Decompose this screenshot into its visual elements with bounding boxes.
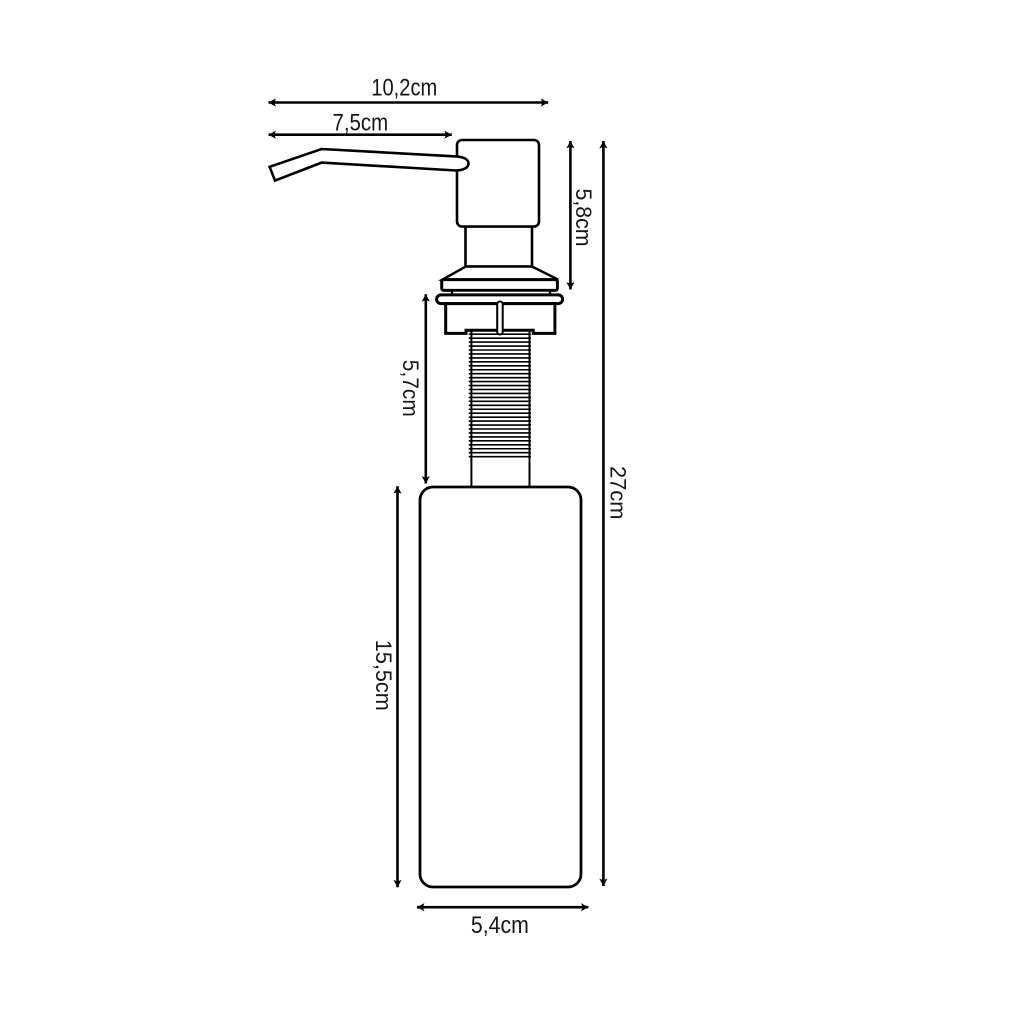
svg-text:27cm: 27cm [606,466,631,520]
svg-text:5,8cm: 5,8cm [571,189,596,247]
svg-text:5,4cm: 5,4cm [471,912,529,939]
svg-text:7,5cm: 7,5cm [333,110,389,137]
svg-text:5,7cm: 5,7cm [398,360,423,417]
svg-text:15,5cm: 15,5cm [371,640,396,711]
svg-text:10,2cm: 10,2cm [371,75,437,102]
